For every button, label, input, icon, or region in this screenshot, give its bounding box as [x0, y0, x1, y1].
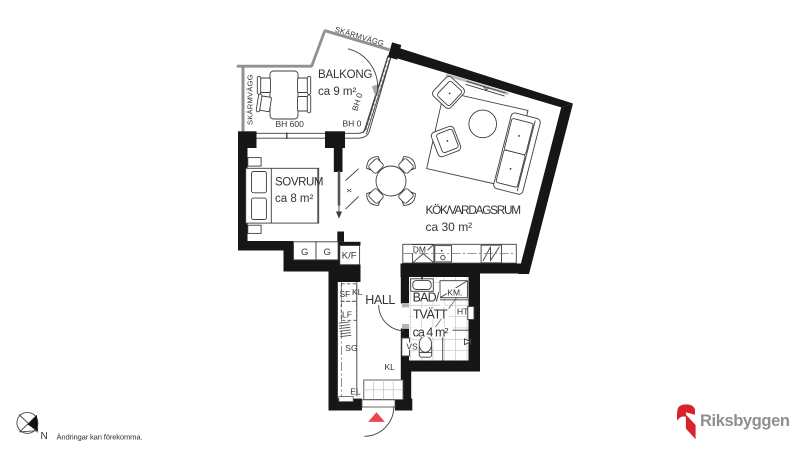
svg-text:SF: SF: [340, 289, 351, 299]
svg-text:K/F: K/F: [342, 251, 357, 262]
svg-text:x: x: [345, 189, 354, 193]
svg-text:G: G: [324, 247, 331, 258]
svg-text:SKÄRMVÄGG: SKÄRMVÄGG: [246, 74, 255, 125]
svg-text:BH 0: BH 0: [343, 119, 362, 129]
svg-text:BALKONG: BALKONG: [318, 69, 372, 81]
svg-text:BAD/: BAD/: [413, 291, 440, 305]
svg-text:SG: SG: [345, 343, 357, 353]
svg-text:TVÄTT: TVÄTT: [413, 308, 448, 322]
svg-text:KÖK/VARDAGSRUM: KÖK/VARDAGSRUM: [426, 203, 521, 217]
svg-text:HT: HT: [457, 307, 468, 317]
svg-text:Riksbyggen: Riksbyggen: [700, 412, 790, 430]
svg-text:DM: DM: [413, 244, 426, 254]
svg-text:KL: KL: [352, 287, 363, 297]
svg-text:HALL: HALL: [365, 293, 395, 307]
svg-text:ca 4 m²: ca 4 m²: [413, 326, 449, 340]
svg-text:ca 9 m²: ca 9 m²: [318, 86, 357, 98]
svg-text:LF: LF: [342, 310, 352, 320]
svg-text:VS: VS: [406, 342, 418, 352]
svg-text:Ändringar kan förekomma.: Ändringar kan förekomma.: [57, 432, 143, 441]
svg-text:ca 8 m²: ca 8 m²: [275, 193, 314, 205]
svg-text:KM.: KM.: [447, 288, 462, 298]
svg-text:EL: EL: [350, 386, 361, 396]
svg-text:SOVRUM: SOVRUM: [275, 177, 323, 189]
svg-text:G: G: [301, 247, 308, 258]
svg-text:N: N: [41, 431, 48, 442]
svg-text:KL: KL: [385, 362, 396, 372]
svg-text:ca 30 m²: ca 30 m²: [426, 220, 473, 234]
svg-text:BH 600: BH 600: [276, 119, 305, 129]
